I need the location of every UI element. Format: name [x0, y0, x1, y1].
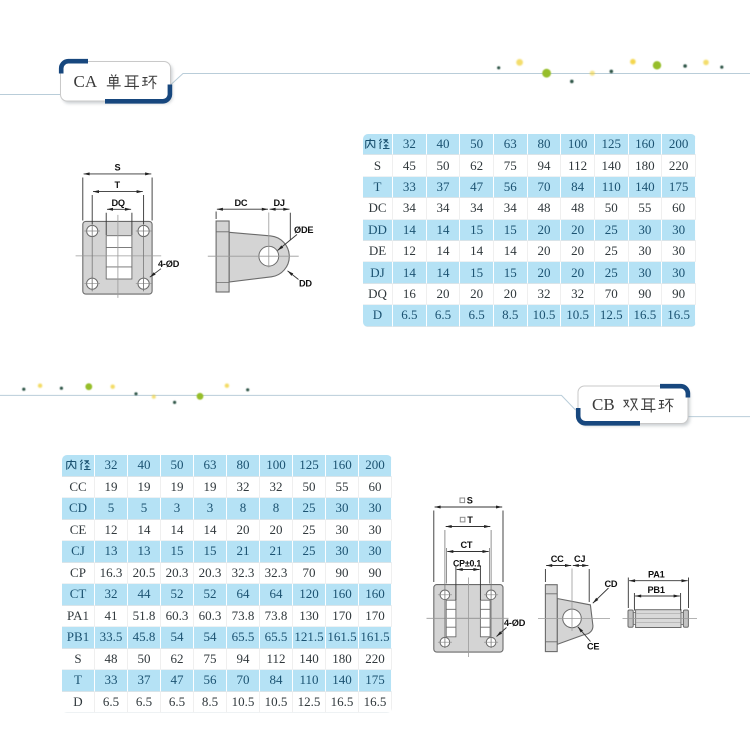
svg-text:CJ: CJ [574, 554, 585, 564]
svg-text:CB: CB [592, 395, 615, 414]
svg-text:4-ØD: 4-ØD [504, 618, 526, 628]
svg-text:S: S [467, 496, 473, 506]
svg-text:T: T [115, 180, 121, 190]
svg-text:CA: CA [74, 72, 98, 91]
svg-text:CD: CD [605, 579, 618, 589]
svg-text:S: S [115, 163, 121, 173]
svg-text:CC: CC [551, 554, 564, 564]
svg-text:PB1: PB1 [648, 585, 665, 595]
svg-text:4-ØD: 4-ØD [158, 259, 180, 269]
svg-text:CT: CT [461, 540, 473, 550]
svg-text:DD: DD [299, 279, 312, 289]
svg-text:DC: DC [235, 198, 248, 208]
svg-text:DQ: DQ [112, 198, 125, 208]
svg-text:CP±0.1: CP±0.1 [453, 559, 481, 569]
svg-text:CE: CE [587, 642, 599, 652]
svg-text:DJ: DJ [274, 198, 285, 208]
svg-text:ØDE: ØDE [294, 225, 313, 235]
svg-text:T: T [467, 515, 473, 525]
svg-text:PA1: PA1 [648, 570, 665, 580]
